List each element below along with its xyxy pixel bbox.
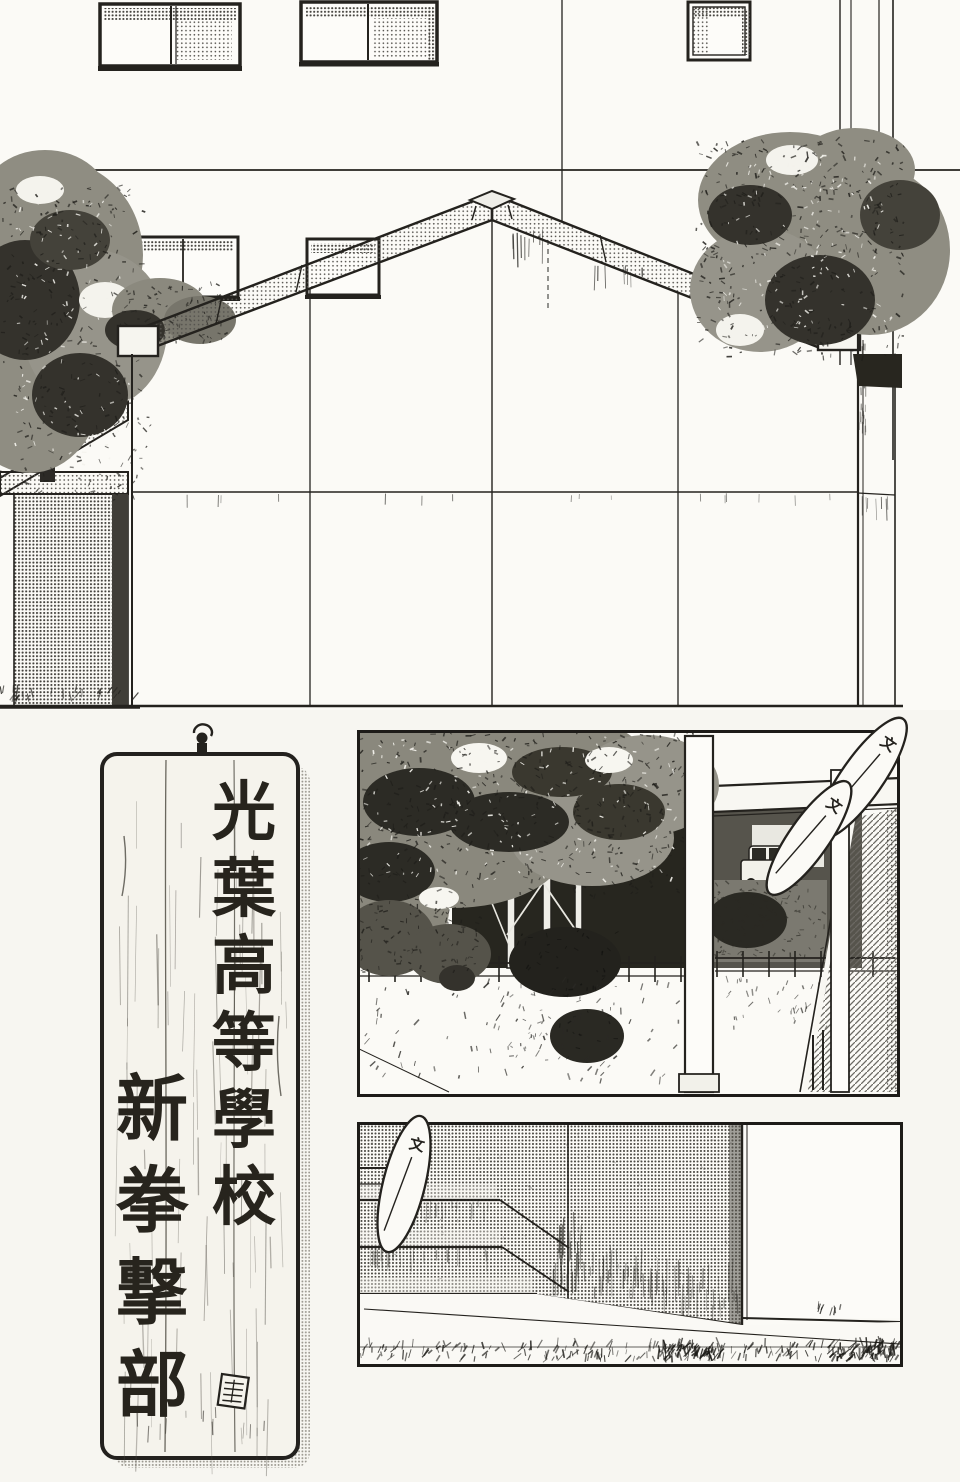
- panel-entrance-steps: 文: [357, 1122, 903, 1367]
- sign-char: 校: [206, 1159, 282, 1236]
- sign-text-club-name: 新 拳 撃 部: [108, 1064, 196, 1432]
- walkway-pillar-front: [679, 736, 719, 1092]
- sign-char: 撃: [108, 1248, 196, 1340]
- sign-text-school-name: 光 葉 高 等 學 校: [206, 774, 282, 1236]
- nail-hook-icon: [194, 724, 212, 755]
- seal-stamp-icon: [218, 1374, 249, 1408]
- panel-signboard: 光 葉 高 等 學 校 新 拳 撃 部: [94, 716, 316, 1472]
- sign-char: 拳: [108, 1156, 196, 1248]
- panel-school-exterior: [0, 0, 960, 710]
- manga-page: 光 葉 高 等 學 校 新 拳 撃 部: [0, 0, 960, 1482]
- sign-char: 高: [206, 928, 282, 1005]
- window-upper-1: [98, 4, 242, 71]
- sign-char: 部: [108, 1340, 196, 1432]
- distant-trees: [707, 880, 827, 962]
- corner-foliage: [853, 354, 902, 388]
- window-upper-3: [688, 2, 750, 60]
- lit-wall: [742, 1122, 900, 1325]
- sign-char: 葉: [206, 851, 282, 928]
- window-upper-2: [299, 2, 439, 67]
- sign-char: 光: [206, 774, 282, 851]
- roof-eave-cap-left: [118, 326, 158, 356]
- sign-char: 新: [108, 1064, 196, 1156]
- sign-char: 等: [206, 1005, 282, 1082]
- panel-garden-walkway: 文 文: [357, 730, 900, 1097]
- sign-char: 學: [206, 1082, 282, 1159]
